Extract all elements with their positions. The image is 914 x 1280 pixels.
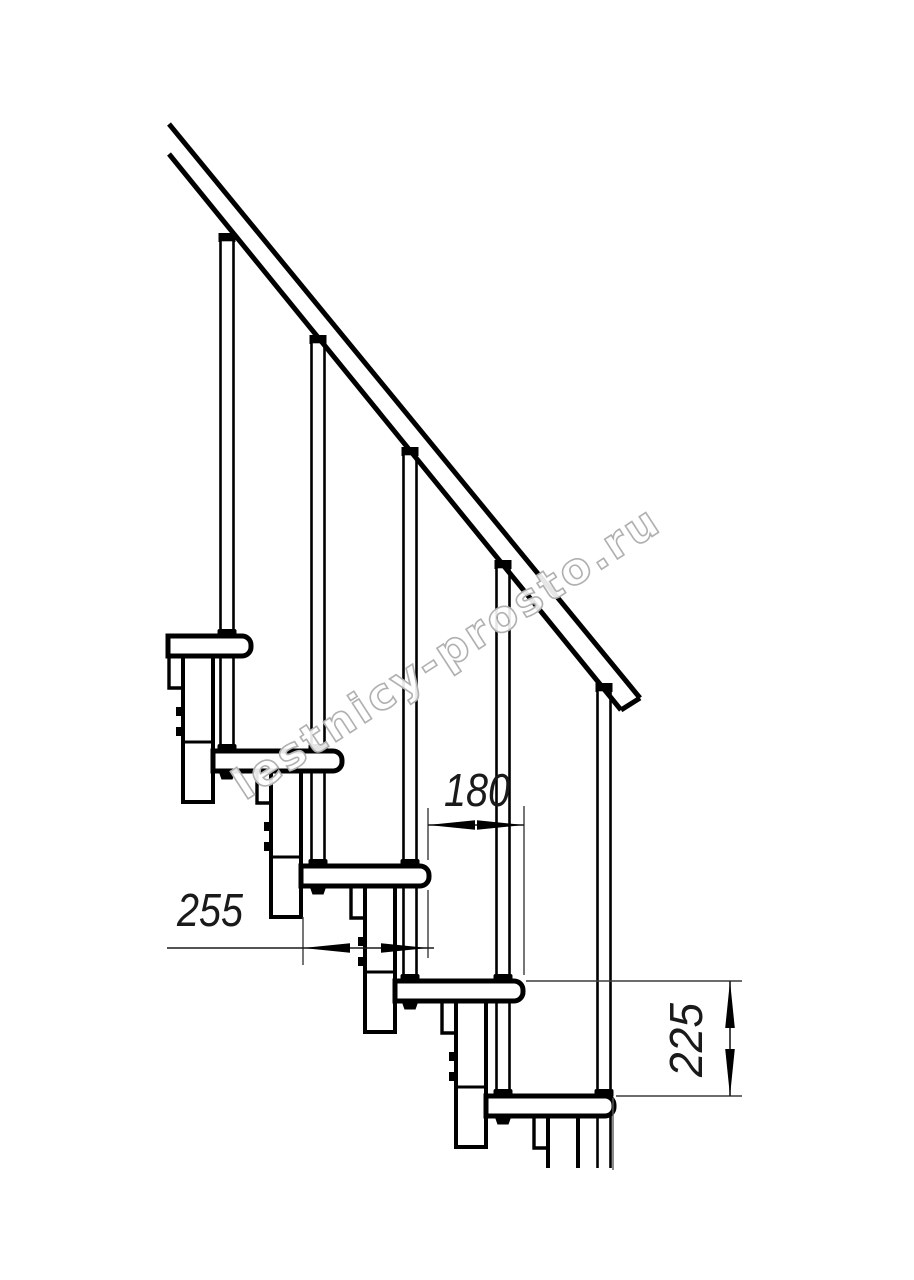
dimension-label-180: 180: [444, 764, 510, 816]
bolt-tab: [358, 957, 366, 966]
baluster-2: [310, 335, 327, 866]
bolt-tab: [264, 842, 272, 851]
nut: [402, 1001, 419, 1010]
support-module-5: [534, 1116, 578, 1168]
support-module-4: [442, 1001, 486, 1147]
staircase-diagram: 180 255 225 lestnicy-prosto.ru: [0, 0, 914, 1280]
support-module-3: [351, 886, 395, 1032]
staircase-drawing-canvas: 180 255 225 lestnicy-prosto.ru: [0, 0, 914, 1280]
bolt-tab: [176, 727, 184, 736]
step-5: [486, 1096, 614, 1116]
baluster-3: [402, 447, 419, 981]
flange: [309, 859, 328, 868]
arrowhead-up: [725, 981, 735, 1028]
nut: [495, 1116, 512, 1125]
flange: [218, 744, 237, 753]
dimension-label-225: 225: [660, 1003, 712, 1078]
nut: [310, 886, 327, 895]
handrail-end-cap: [621, 698, 640, 710]
baluster-1: [219, 233, 236, 751]
step-4: [395, 981, 523, 1001]
arrowhead-left: [428, 820, 475, 830]
step-1: [168, 636, 251, 656]
collar: [595, 1089, 614, 1098]
bolt-tab: [264, 822, 272, 831]
flange: [494, 1089, 513, 1098]
support-module-1: [169, 656, 213, 802]
collar: [218, 629, 237, 638]
step-3: [301, 866, 429, 886]
collar: [401, 859, 420, 868]
arrowhead-left: [303, 943, 350, 953]
bolt-tab: [449, 1052, 457, 1061]
bolt-tab: [176, 707, 184, 716]
collar: [494, 974, 513, 983]
dimension-225: 225: [526, 981, 742, 1096]
bolt-tab: [358, 937, 366, 946]
bolt-tab: [449, 1072, 457, 1081]
flange: [401, 974, 420, 983]
handrail-bottom-edge: [169, 154, 621, 710]
arrowhead-down: [725, 1049, 735, 1096]
dimension-label-255: 255: [176, 884, 243, 936]
